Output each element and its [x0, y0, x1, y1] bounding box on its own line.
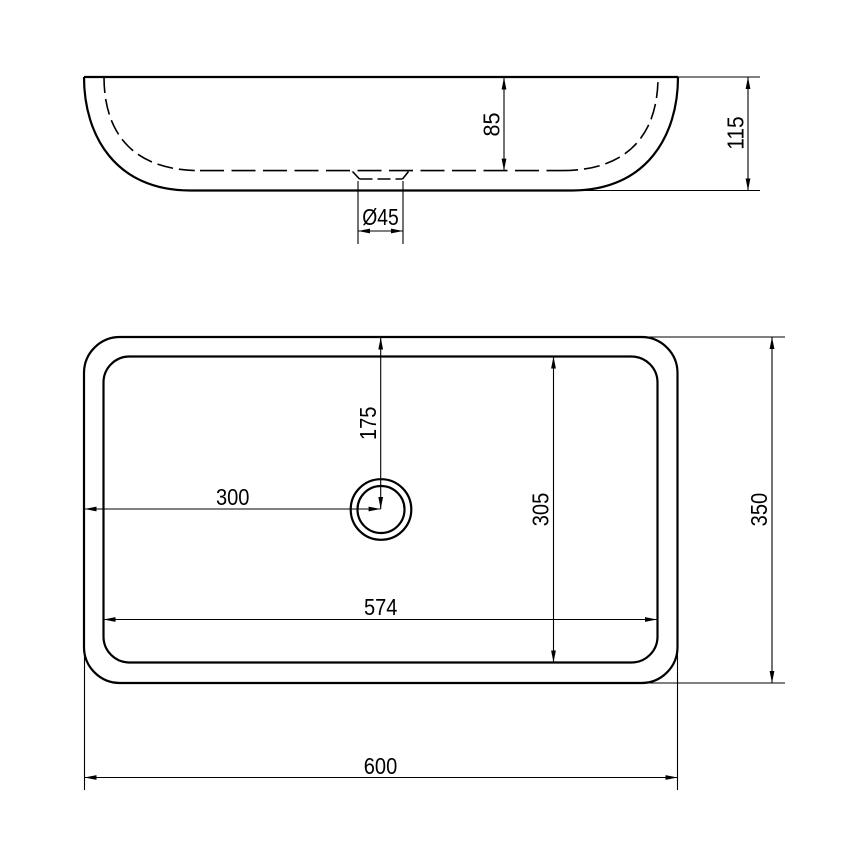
- svg-text:305: 305: [528, 493, 554, 527]
- svg-text:85: 85: [479, 113, 505, 137]
- svg-text:574: 574: [364, 594, 398, 620]
- svg-text:600: 600: [364, 753, 398, 779]
- svg-text:300: 300: [216, 484, 250, 510]
- svg-text:175: 175: [355, 407, 381, 441]
- svg-text:115: 115: [723, 116, 749, 150]
- svg-text:Ø45: Ø45: [362, 204, 399, 230]
- svg-text:350: 350: [746, 493, 772, 526]
